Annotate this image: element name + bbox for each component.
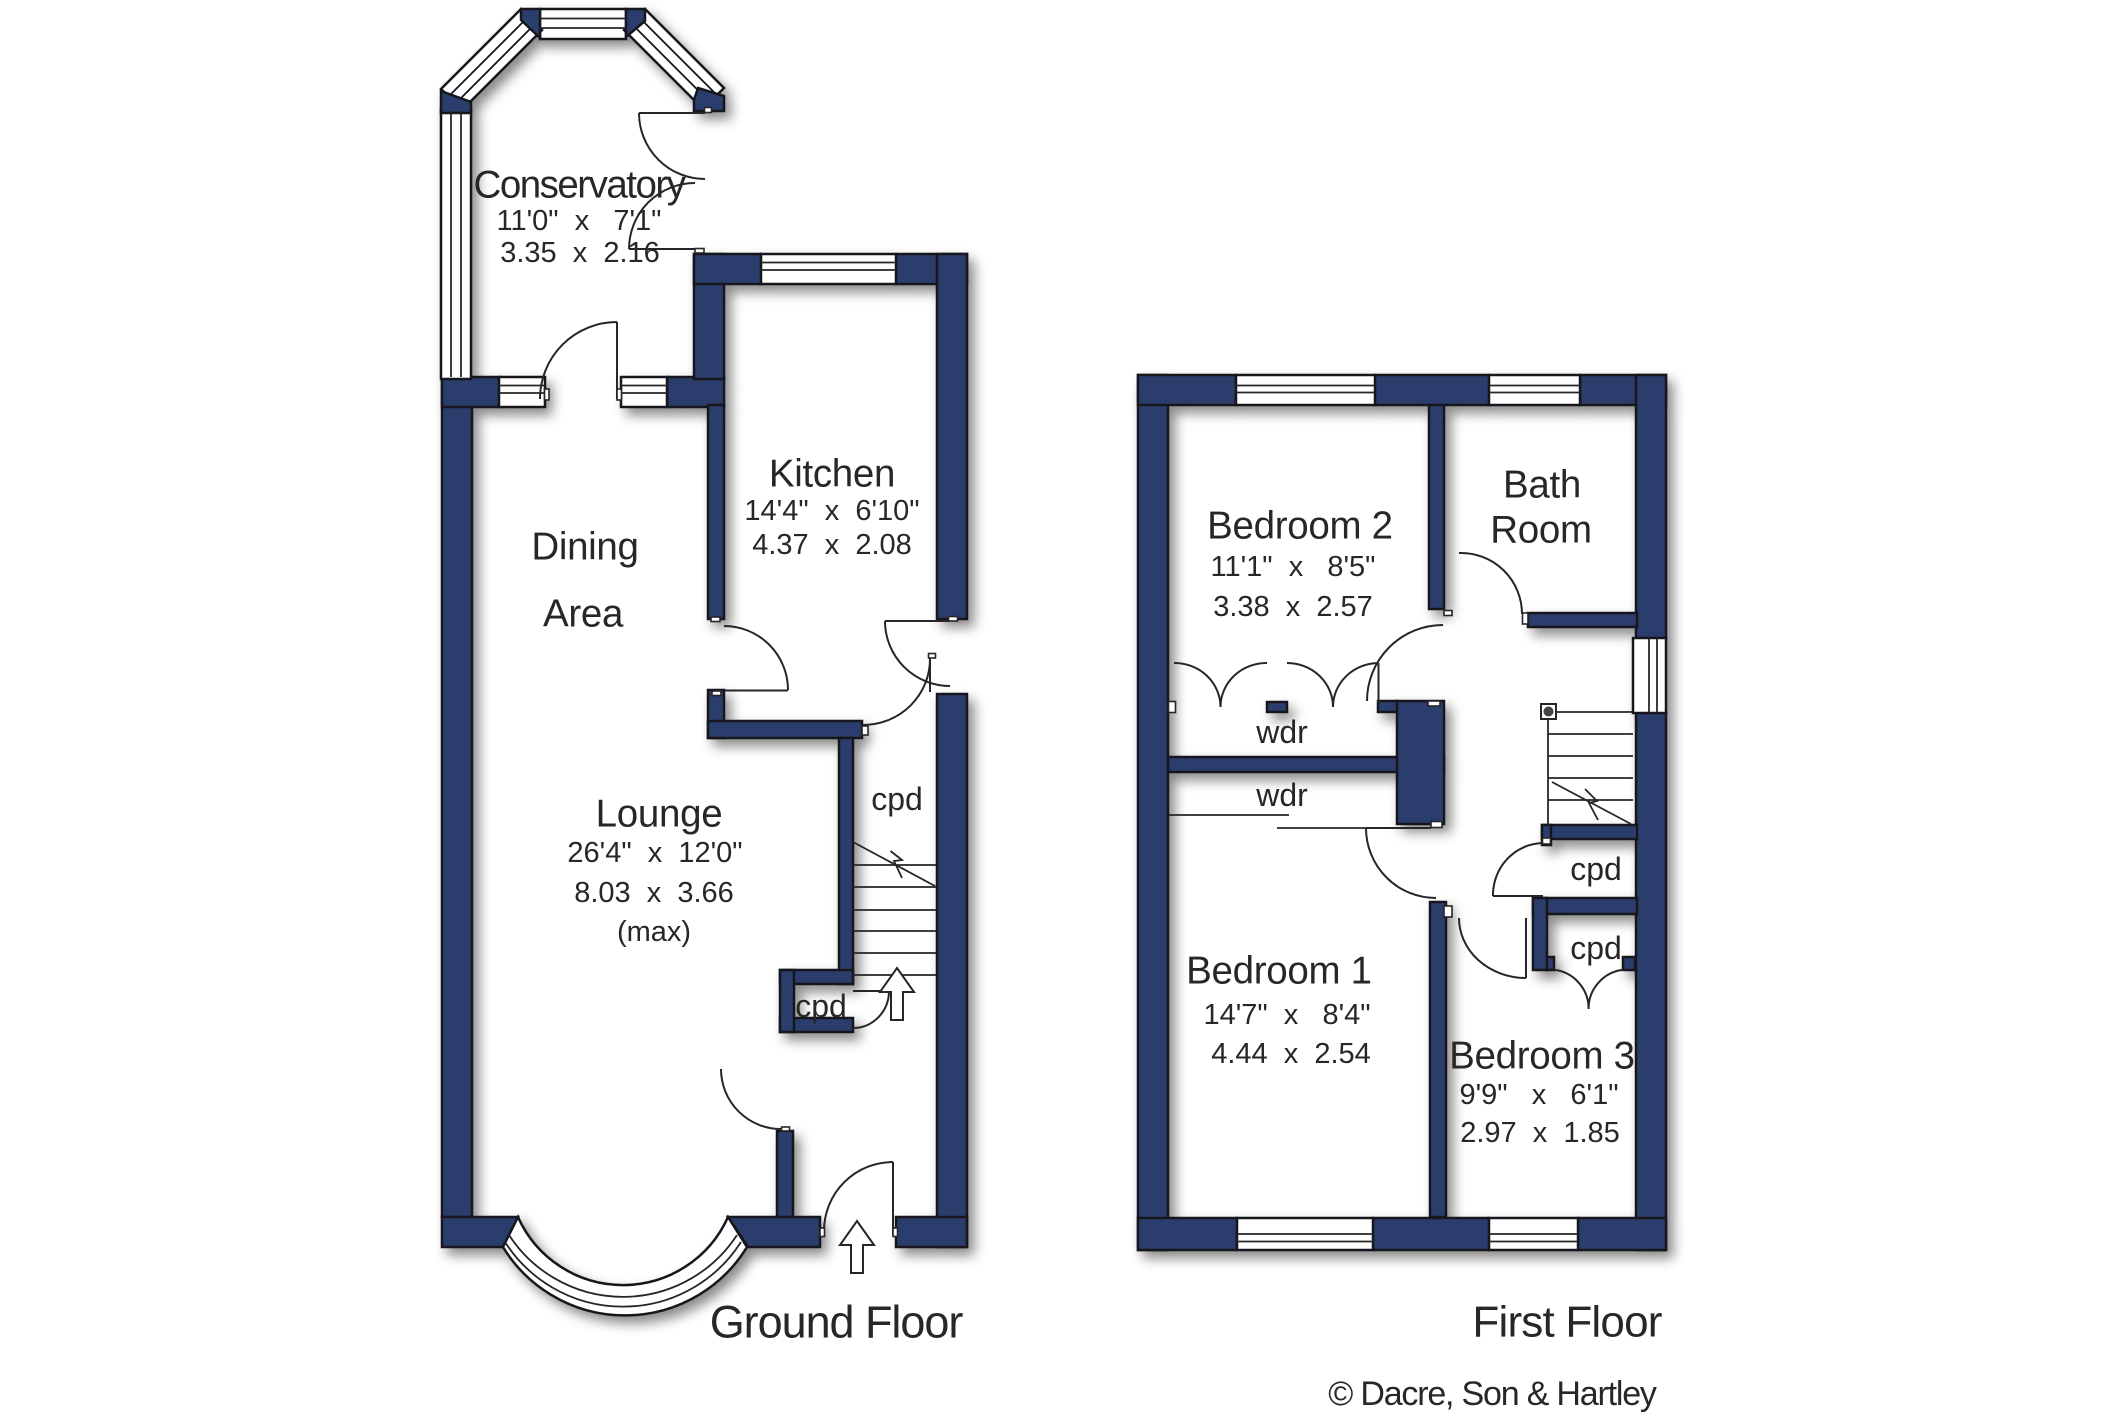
svg-text:3.35 x 2.16: 3.35 x 2.16 (500, 237, 660, 269)
svg-text:wdr: wdr (1255, 777, 1308, 813)
svg-text:2.97 x 1.85: 2.97 x 1.85 (1460, 1117, 1620, 1149)
svg-text:Dining: Dining (531, 526, 638, 569)
svg-text:Ground Floor: Ground Floor (710, 1297, 964, 1348)
svg-text:14'4" x 6'10": 14'4" x 6'10" (744, 495, 919, 527)
svg-text:wdr: wdr (1255, 714, 1308, 750)
svg-text:26'4" x 12'0": 26'4" x 12'0" (567, 837, 742, 869)
svg-text:(max): (max) (617, 916, 691, 948)
svg-text:cpd: cpd (795, 988, 847, 1024)
svg-text:cpd: cpd (1570, 851, 1622, 887)
svg-text:11'0" x 7'1": 11'0" x 7'1" (497, 205, 662, 237)
svg-text:3.38 x 2.57: 3.38 x 2.57 (1213, 591, 1373, 623)
svg-text:8.03 x 3.66: 8.03 x 3.66 (574, 877, 734, 909)
svg-text:14'7" x 8'4": 14'7" x 8'4" (1203, 999, 1370, 1031)
svg-text:4.37 x 2.08: 4.37 x 2.08 (752, 529, 912, 561)
svg-text:Bedroom 2: Bedroom 2 (1207, 505, 1393, 548)
svg-text:11'1" x 8'5": 11'1" x 8'5" (1211, 551, 1376, 583)
svg-text:© Dacre, Son & Hartley: © Dacre, Son & Hartley (1328, 1375, 1657, 1413)
svg-text:Bath: Bath (1503, 464, 1581, 507)
svg-text:First Floor: First Floor (1472, 1298, 1661, 1347)
svg-text:4.44 x 2.54: 4.44 x 2.54 (1211, 1038, 1371, 1070)
svg-text:Area: Area (543, 593, 624, 636)
svg-text:9'9" x 6'1": 9'9" x 6'1" (1459, 1079, 1618, 1111)
svg-text:Bedroom 3: Bedroom 3 (1449, 1035, 1635, 1078)
svg-text:Bedroom 1: Bedroom 1 (1186, 950, 1372, 993)
svg-text:Kitchen: Kitchen (769, 453, 895, 496)
svg-text:cpd: cpd (1570, 930, 1622, 966)
svg-text:Lounge: Lounge (596, 793, 723, 836)
svg-text:Room: Room (1490, 509, 1592, 552)
svg-text:Conservatory: Conservatory (474, 164, 687, 207)
svg-text:cpd: cpd (871, 781, 923, 817)
